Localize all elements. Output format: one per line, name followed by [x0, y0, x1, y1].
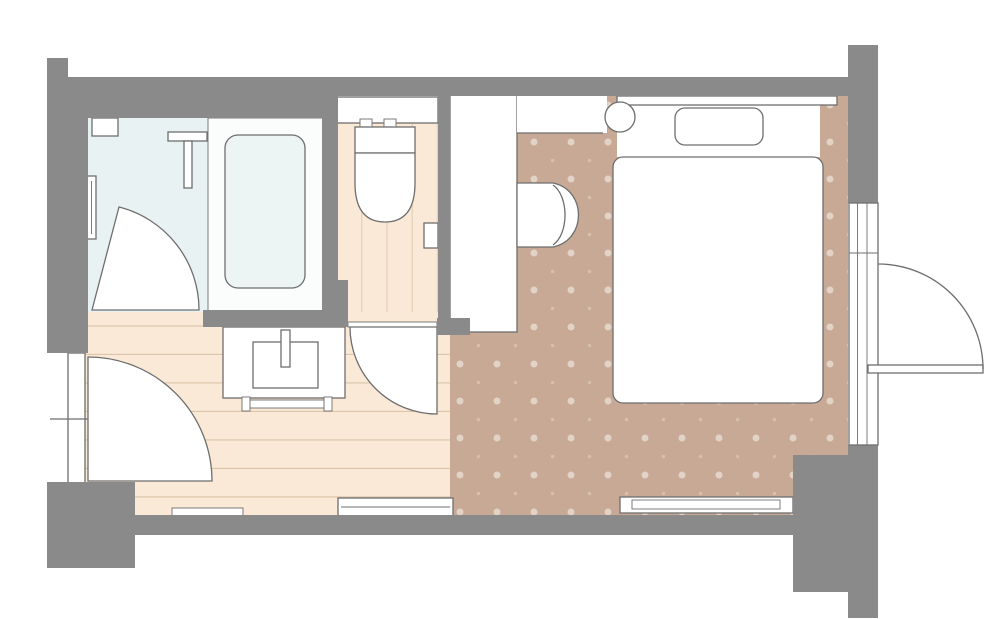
- wall-toilet-right: [438, 96, 450, 335]
- headboard: [617, 96, 837, 105]
- floor-plan: [0, 0, 1000, 619]
- towel-rail-cap-left: [242, 397, 250, 411]
- shower-head-bar: [168, 132, 207, 141]
- hall-step-cabinet: [338, 498, 453, 517]
- plan-drawing: [47, 45, 983, 618]
- luggage-bench: [517, 183, 579, 247]
- toilet-paper-holder: [424, 223, 438, 248]
- toilet-tank: [355, 127, 415, 153]
- wall-toilet-left: [322, 96, 338, 327]
- toilet-door-threshold: [348, 322, 437, 327]
- wall-top-thick: [47, 96, 338, 118]
- wall-right-bottom: [848, 445, 878, 618]
- towel-rail-cap-right: [324, 397, 332, 411]
- wall-left: [47, 77, 88, 353]
- toilet-connector-right: [384, 119, 396, 127]
- wall-corner-block: [793, 455, 848, 592]
- wall-niche: [92, 118, 118, 136]
- wall-top-left-stub: [47, 58, 68, 77]
- wall-right-top: [848, 45, 878, 203]
- balcony-door-swing: [878, 264, 983, 369]
- double-bed: [613, 157, 823, 403]
- entrance-door: [68, 353, 85, 483]
- wall-bottom-left-block: [47, 482, 135, 568]
- towel-rail-bar: [250, 400, 324, 408]
- bedside-nook: [517, 95, 607, 133]
- toilet-connector-left: [360, 119, 372, 127]
- wall-bottom: [135, 515, 795, 535]
- pillow: [675, 108, 763, 145]
- toilet-bowl: [355, 153, 415, 222]
- floor-unit: [620, 497, 793, 513]
- wall-top: [47, 77, 848, 96]
- wall-bathroom-bottom: [203, 310, 345, 327]
- wall-stub-bedroom: [437, 318, 470, 335]
- closet: [450, 95, 517, 332]
- bathtub: [225, 135, 305, 288]
- bedside-table: [605, 102, 635, 132]
- shower-head-stem: [184, 141, 192, 188]
- balcony-door: [868, 365, 983, 373]
- balcony-window: [849, 203, 878, 445]
- faucet: [281, 330, 290, 367]
